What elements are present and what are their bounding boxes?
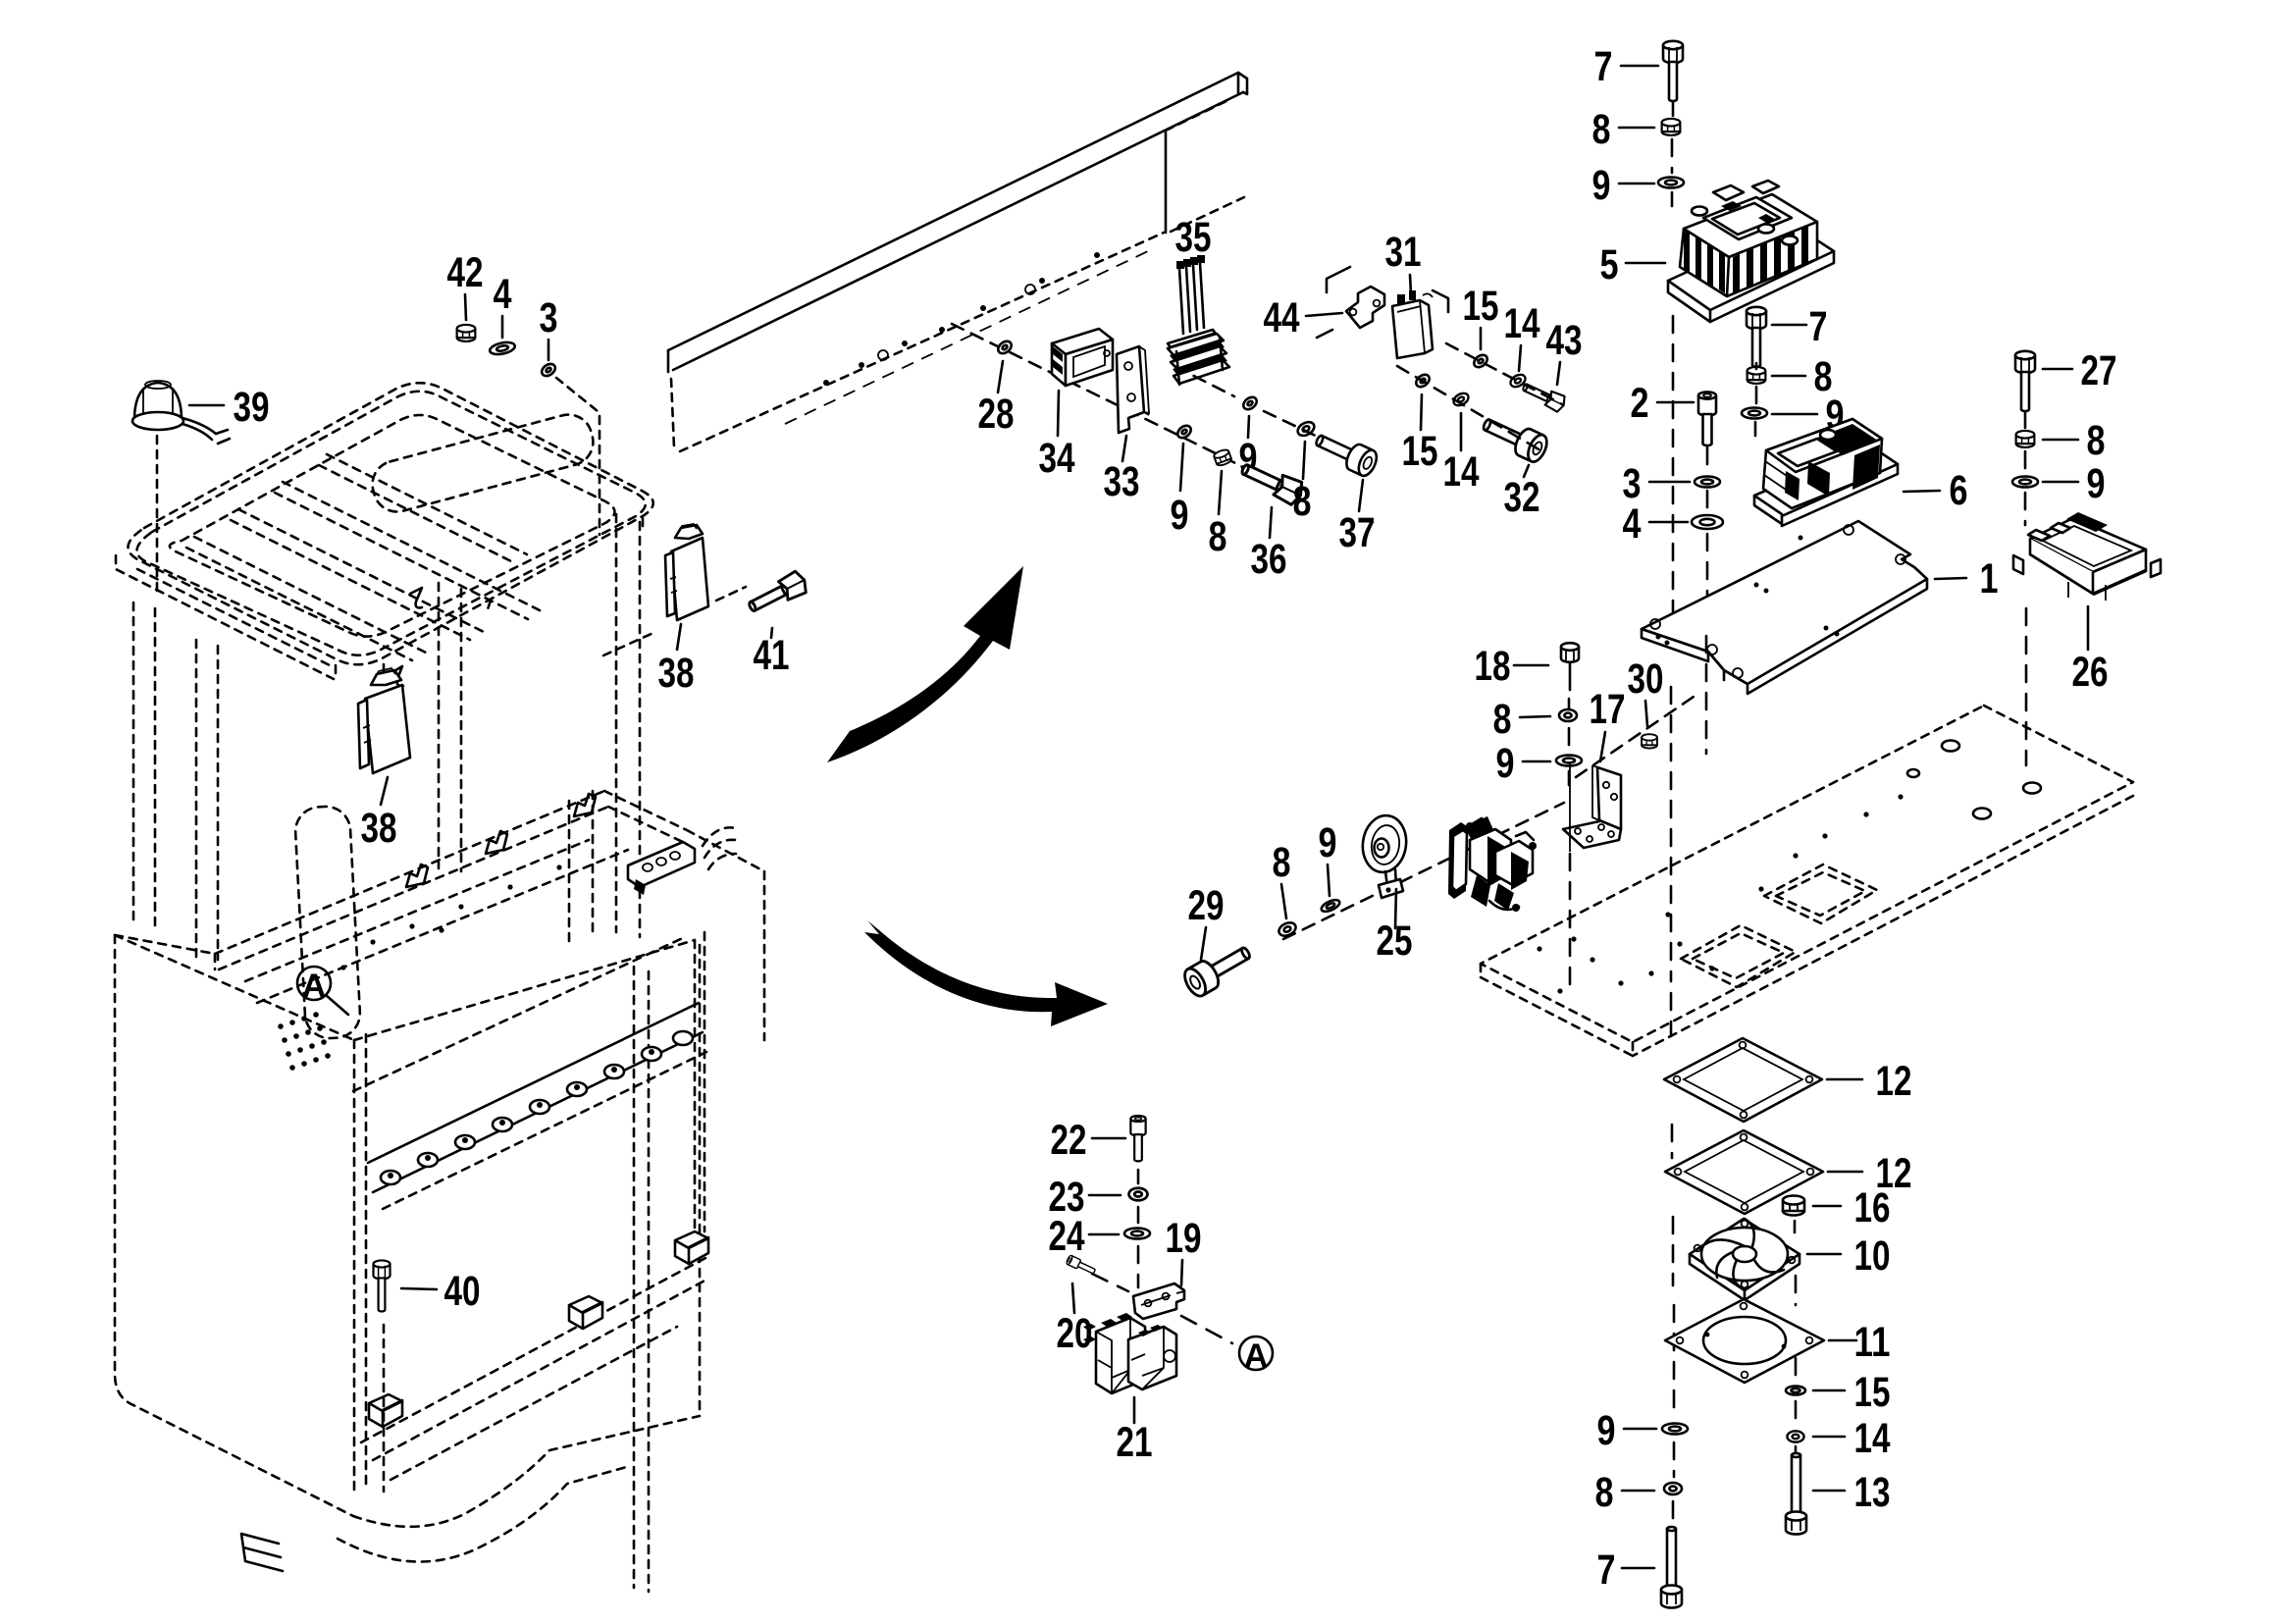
svg-text:38: 38 <box>361 805 397 852</box>
svg-text:14: 14 <box>1443 448 1480 496</box>
svg-text:8: 8 <box>1592 106 1611 153</box>
svg-text:19: 19 <box>1166 1215 1202 1262</box>
svg-text:3: 3 <box>540 294 558 341</box>
svg-text:36: 36 <box>1251 536 1287 583</box>
svg-text:27: 27 <box>2081 347 2117 394</box>
svg-text:14: 14 <box>1504 300 1540 347</box>
svg-text:15: 15 <box>1402 428 1438 475</box>
svg-text:39: 39 <box>234 384 270 431</box>
svg-text:9: 9 <box>1171 492 1189 539</box>
svg-text:16: 16 <box>1854 1184 1891 1231</box>
svg-text:A: A <box>1244 1337 1269 1375</box>
svg-text:30: 30 <box>1628 655 1664 703</box>
svg-text:15: 15 <box>1854 1369 1891 1416</box>
svg-text:32: 32 <box>1504 474 1540 521</box>
svg-text:8: 8 <box>1493 696 1512 743</box>
svg-text:5: 5 <box>1600 241 1619 288</box>
svg-text:14: 14 <box>1854 1415 1891 1462</box>
svg-text:4: 4 <box>1623 500 1642 548</box>
svg-text:15: 15 <box>1463 283 1499 330</box>
svg-text:9: 9 <box>1592 162 1611 209</box>
svg-text:9: 9 <box>2087 460 2106 507</box>
svg-text:6: 6 <box>1950 467 1968 514</box>
svg-text:8: 8 <box>1209 513 1227 560</box>
svg-text:2: 2 <box>1631 380 1649 427</box>
svg-text:1: 1 <box>1980 555 1999 602</box>
svg-text:43: 43 <box>1546 317 1583 364</box>
svg-text:7: 7 <box>1597 1546 1616 1594</box>
svg-text:20: 20 <box>1057 1310 1093 1357</box>
svg-text:37: 37 <box>1339 509 1376 556</box>
svg-text:4: 4 <box>494 271 512 318</box>
svg-text:7: 7 <box>1809 303 1828 350</box>
svg-text:9: 9 <box>1496 740 1515 787</box>
svg-text:13: 13 <box>1854 1469 1891 1516</box>
svg-text:35: 35 <box>1175 214 1212 261</box>
svg-text:31: 31 <box>1385 229 1422 276</box>
svg-text:33: 33 <box>1104 458 1140 505</box>
svg-text:17: 17 <box>1590 686 1626 733</box>
svg-text:24: 24 <box>1049 1213 1085 1260</box>
svg-text:8: 8 <box>1293 478 1312 525</box>
svg-text:44: 44 <box>1264 294 1300 341</box>
svg-text:9: 9 <box>1597 1407 1616 1454</box>
svg-text:38: 38 <box>658 650 695 697</box>
svg-text:29: 29 <box>1188 882 1225 929</box>
svg-text:34: 34 <box>1039 435 1075 482</box>
svg-text:8: 8 <box>1273 839 1291 886</box>
svg-text:28: 28 <box>978 391 1015 438</box>
svg-text:8: 8 <box>2087 417 2106 464</box>
svg-text:11: 11 <box>1854 1319 1891 1366</box>
svg-text:9: 9 <box>1319 819 1337 866</box>
svg-text:18: 18 <box>1475 643 1511 690</box>
svg-text:22: 22 <box>1051 1117 1087 1164</box>
svg-text:8: 8 <box>1595 1469 1614 1516</box>
svg-text:40: 40 <box>444 1268 481 1315</box>
svg-text:7: 7 <box>1594 43 1613 90</box>
svg-text:42: 42 <box>447 249 484 296</box>
svg-text:21: 21 <box>1117 1419 1153 1466</box>
svg-text:10: 10 <box>1854 1232 1891 1280</box>
svg-text:A: A <box>302 968 327 1005</box>
svg-text:12: 12 <box>1876 1058 1912 1105</box>
svg-text:26: 26 <box>2072 649 2109 696</box>
